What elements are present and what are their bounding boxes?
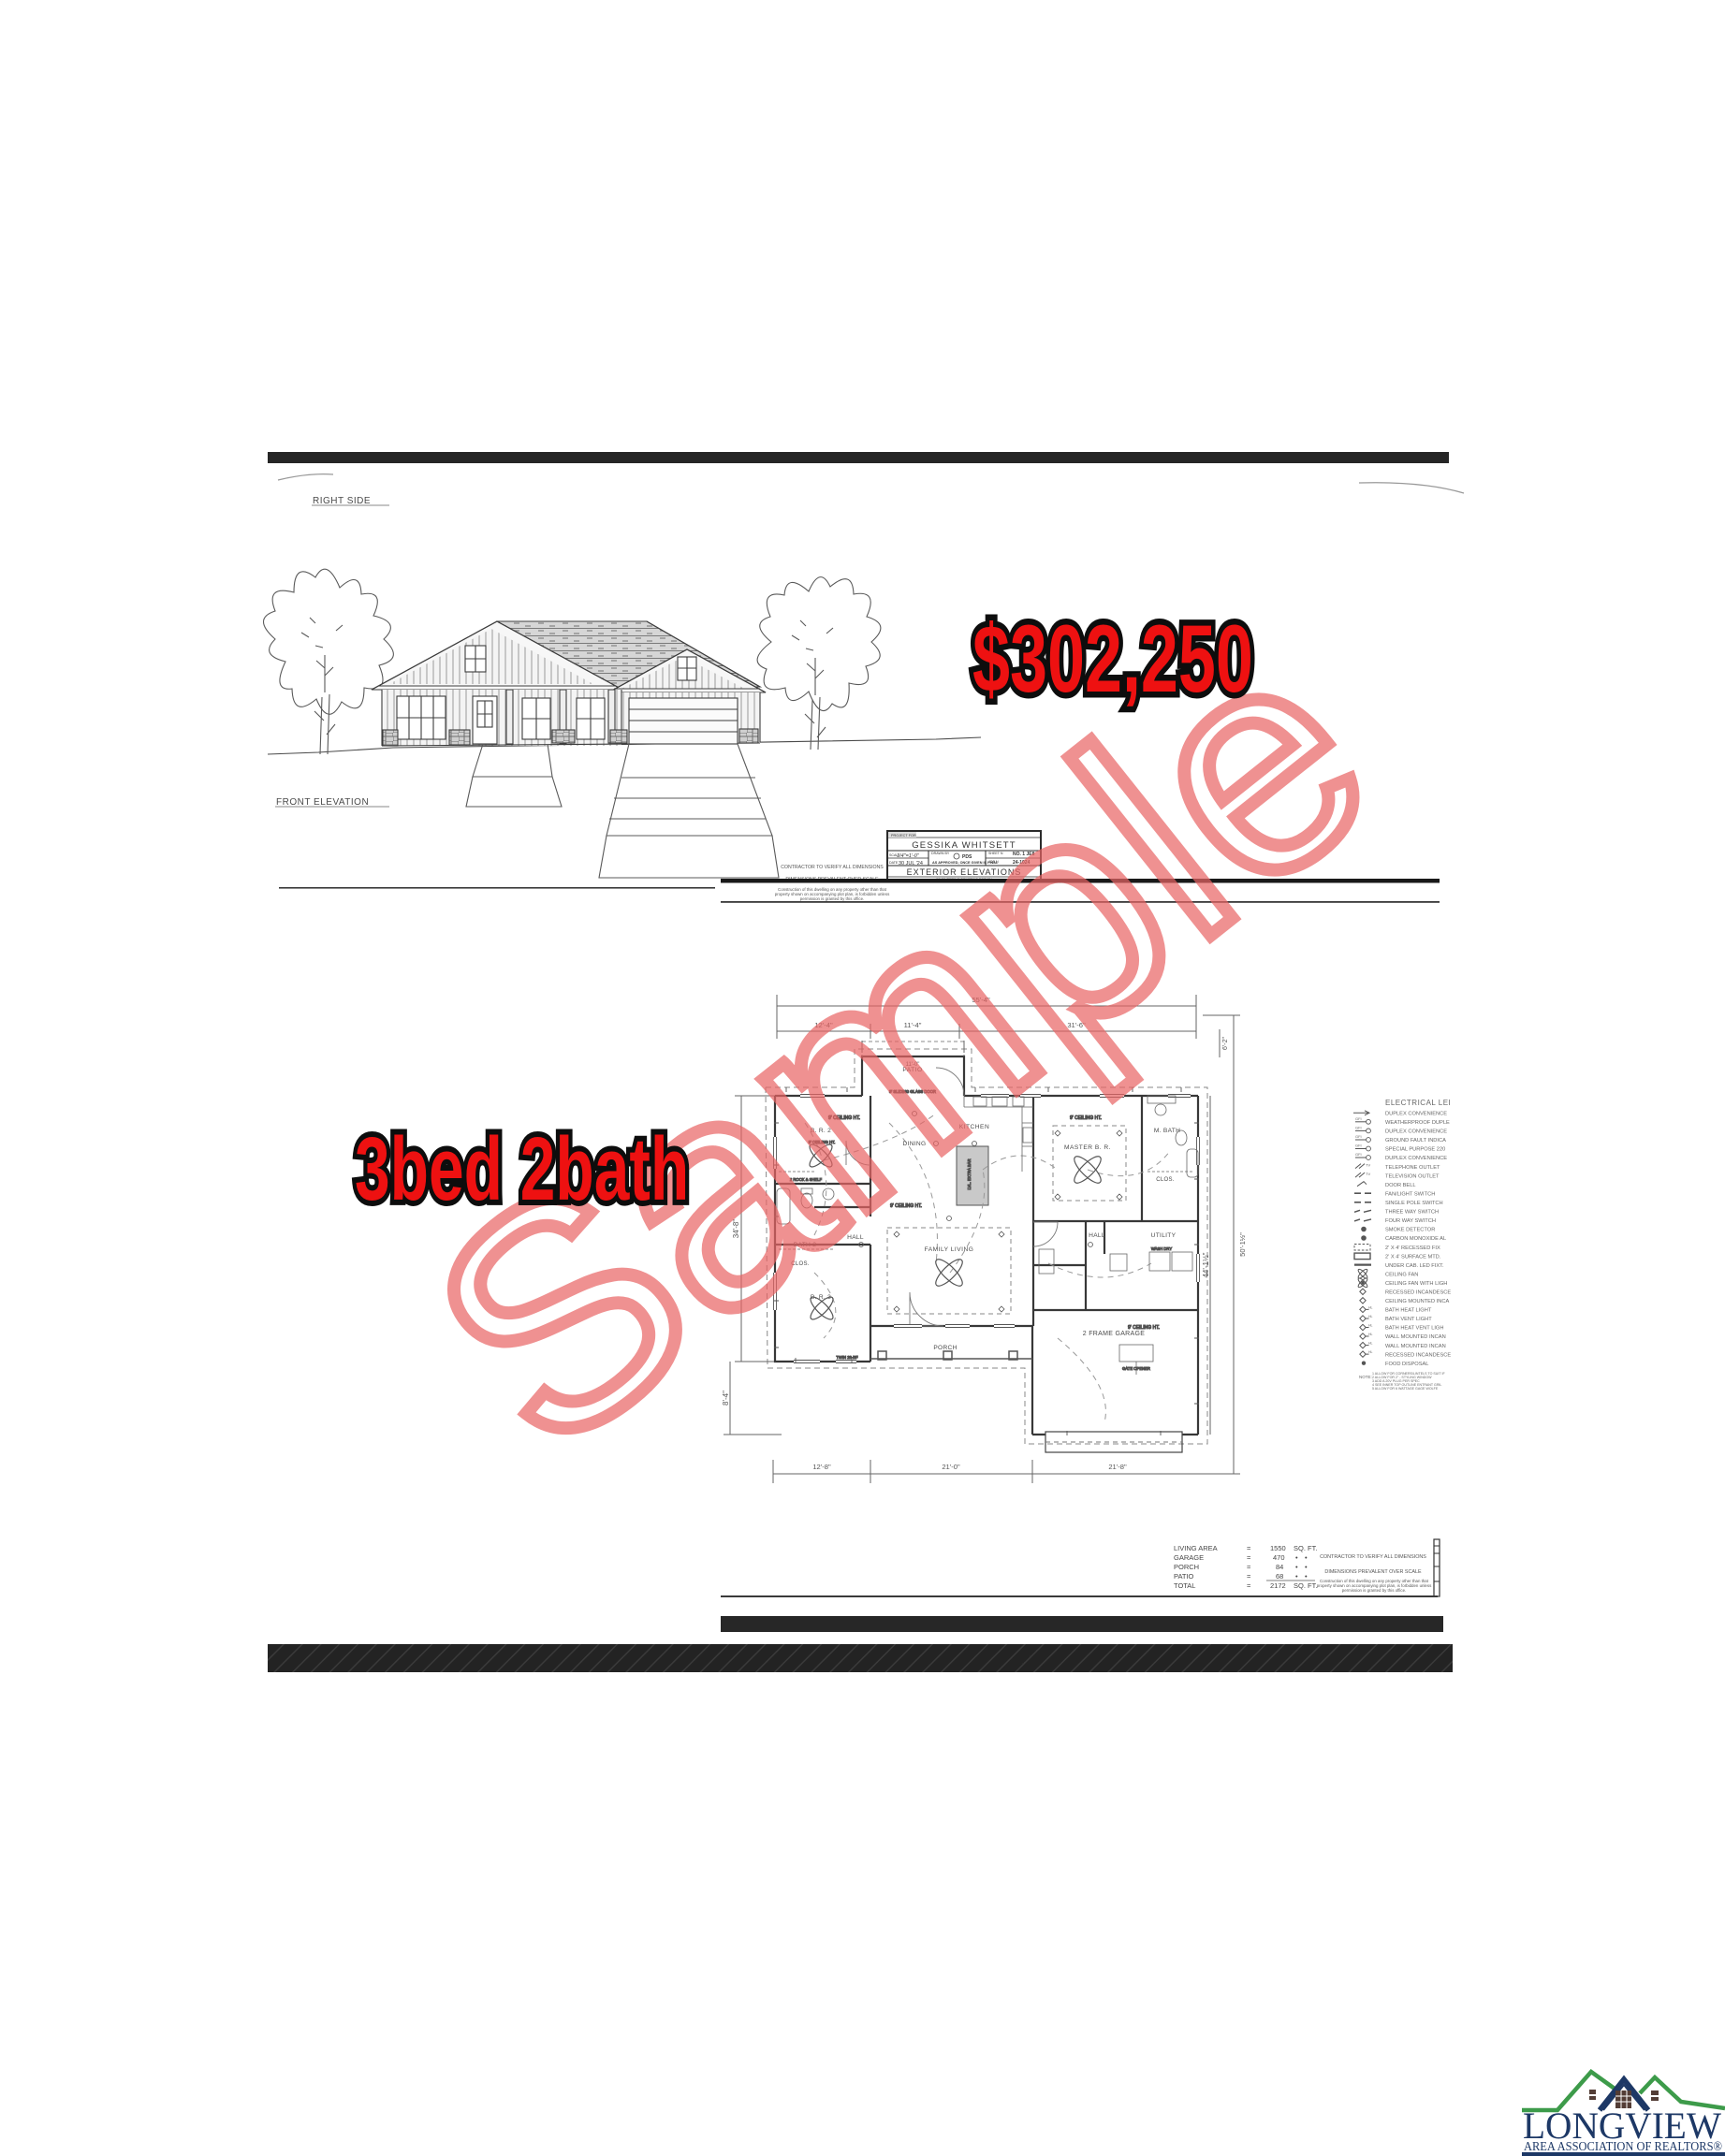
svg-text:=: = bbox=[1247, 1581, 1251, 1590]
svg-text:50'-1½": 50'-1½" bbox=[1238, 1232, 1247, 1257]
svg-text:RECESSED INCANDESCE: RECESSED INCANDESCE bbox=[1385, 1290, 1451, 1296]
svg-text:HL: HL bbox=[1368, 1305, 1373, 1309]
svg-text:TELEVISION OUTLET: TELEVISION OUTLET bbox=[1385, 1173, 1440, 1179]
svg-text:AREA ASSOCIATION OF REALTORS®: AREA ASSOCIATION OF REALTORS® bbox=[1524, 2139, 1722, 2153]
svg-text:FRONT ELEVATION: FRONT ELEVATION bbox=[276, 797, 369, 808]
svg-text:GATE OPENER: GATE OPENER bbox=[1122, 1366, 1150, 1371]
svg-text:21'-8": 21'-8" bbox=[1108, 1463, 1127, 1471]
svg-text:•: • bbox=[1305, 1572, 1308, 1581]
svg-text:•: • bbox=[1295, 1553, 1298, 1562]
svg-text:•: • bbox=[1295, 1572, 1298, 1581]
svg-text:GFI: GFI bbox=[1355, 1116, 1362, 1121]
svg-text:$302,250: $302,250 bbox=[972, 605, 1253, 712]
svg-text:GFI: GFI bbox=[1355, 1144, 1362, 1148]
svg-text:=: = bbox=[1247, 1544, 1251, 1552]
svg-text:ELECTRICAL LEI: ELECTRICAL LEI bbox=[1385, 1099, 1451, 1107]
svg-text:BATH VENT LIGHT: BATH VENT LIGHT bbox=[1385, 1317, 1432, 1322]
svg-text:HL: HL bbox=[1368, 1333, 1373, 1336]
svg-text:RECESSED INCANDESCE: RECESSED INCANDESCE bbox=[1385, 1352, 1451, 1358]
svg-text:DUPLEX CONVENIENCE: DUPLEX CONVENIENCE bbox=[1385, 1129, 1447, 1135]
svg-text:permission is granted by this: permission is granted by this office. bbox=[1342, 1588, 1407, 1593]
svg-text:2 FRAME GARAGE: 2 FRAME GARAGE bbox=[1083, 1331, 1145, 1337]
svg-text:GROUND FAULT INDICA: GROUND FAULT INDICA bbox=[1385, 1138, 1446, 1144]
svg-text:WEATHERPROOF DUPLE: WEATHERPROOF DUPLE bbox=[1385, 1120, 1450, 1126]
svg-text:DIMENSIONS PREVALENT OVER S: DIMENSIONS PREVALENT OVER SCALE bbox=[1324, 1569, 1422, 1575]
svg-text:PATIO: PATIO bbox=[1174, 1572, 1194, 1581]
svg-text:=: = bbox=[1247, 1572, 1251, 1581]
svg-text:HALL: HALL bbox=[1089, 1232, 1105, 1239]
svg-text:=: = bbox=[1247, 1563, 1251, 1571]
svg-text:DUPLEX CONVENIENCE: DUPLEX CONVENIENCE bbox=[1385, 1112, 1447, 1117]
svg-text:GFI: GFI bbox=[1355, 1152, 1362, 1157]
svg-text:BATH HEAT VENT LIGH: BATH HEAT VENT LIGH bbox=[1385, 1326, 1443, 1332]
svg-text:DOOR BELL: DOOR BELL bbox=[1385, 1183, 1416, 1188]
svg-text:=: = bbox=[1247, 1553, 1251, 1562]
svg-text:SQ. FT.: SQ. FT. bbox=[1294, 1544, 1317, 1552]
svg-text:TV: TV bbox=[1366, 1163, 1370, 1168]
svg-text:•: • bbox=[1305, 1563, 1308, 1571]
svg-text:BATH HEAT LIGHT: BATH HEAT LIGHT bbox=[1385, 1308, 1432, 1314]
svg-text:CEILING FAN WITH LIGH: CEILING FAN WITH LIGH bbox=[1385, 1281, 1447, 1287]
svg-text:CONTRACTOR TO VERIFY ALL D: CONTRACTOR TO VERIFY ALL DIMENSIONS bbox=[1320, 1554, 1426, 1560]
svg-text:2' X 4' SURFACE MTD.: 2' X 4' SURFACE MTD. bbox=[1385, 1254, 1441, 1260]
svg-text:TELEPHONE OUTLET: TELEPHONE OUTLET bbox=[1385, 1165, 1440, 1171]
svg-text:WASH DRY: WASH DRY bbox=[1151, 1246, 1173, 1251]
svg-text:M. BATH: M. BATH bbox=[1154, 1128, 1180, 1134]
svg-text:THREE WAY SWITCH: THREE WAY SWITCH bbox=[1385, 1210, 1439, 1216]
svg-text:HL: HL bbox=[1368, 1342, 1373, 1346]
svg-text:12'-8": 12'-8" bbox=[812, 1463, 831, 1471]
svg-text:•: • bbox=[1295, 1563, 1298, 1571]
svg-text:470: 470 bbox=[1273, 1553, 1285, 1562]
svg-text:CLOS.: CLOS. bbox=[1156, 1177, 1175, 1183]
svg-text:FAMILY LIVING: FAMILY LIVING bbox=[925, 1246, 974, 1253]
svg-text:TOTAL: TOTAL bbox=[1174, 1581, 1195, 1590]
svg-text:HL: HL bbox=[1368, 1350, 1373, 1354]
svg-text:PORCH: PORCH bbox=[1174, 1563, 1199, 1571]
svg-text:6'-2": 6'-2" bbox=[1222, 1037, 1229, 1050]
svg-text:CARBON MONOXIDE AL: CARBON MONOXIDE AL bbox=[1385, 1236, 1446, 1242]
svg-text:LIVING AREA: LIVING AREA bbox=[1174, 1544, 1218, 1552]
svg-text:FOOD DISPOSAL: FOOD DISPOSAL bbox=[1385, 1362, 1428, 1367]
svg-text:68: 68 bbox=[1276, 1572, 1283, 1581]
svg-text:84: 84 bbox=[1276, 1563, 1283, 1571]
svg-text:FAN/LIGHT SWITCH: FAN/LIGHT SWITCH bbox=[1385, 1192, 1435, 1198]
svg-text:DUPLEX CONVENIENCE: DUPLEX CONVENIENCE bbox=[1385, 1156, 1447, 1161]
svg-text:UNDER CAB. LED FIXT.: UNDER CAB. LED FIXT. bbox=[1385, 1263, 1444, 1269]
svg-text:21'-0": 21'-0" bbox=[942, 1463, 960, 1471]
svg-text:WALL MOUNTED INCAN: WALL MOUNTED INCAN bbox=[1385, 1334, 1446, 1340]
svg-text:5 ALLOW FOR 6 WATTAGE GAGE WO: 5 ALLOW FOR 6 WATTAGE GAGE WOLFE bbox=[1372, 1387, 1439, 1391]
svg-text:UTILITY: UTILITY bbox=[1151, 1232, 1177, 1239]
svg-text:2172: 2172 bbox=[1270, 1581, 1286, 1590]
svg-text:PORCH: PORCH bbox=[933, 1345, 957, 1351]
svg-text:HL: HL bbox=[1368, 1315, 1373, 1318]
svg-text:TV: TV bbox=[1366, 1172, 1370, 1176]
svg-text:NOTE:: NOTE: bbox=[1359, 1375, 1372, 1379]
svg-text:44'-1½": 44'-1½" bbox=[1202, 1252, 1210, 1277]
svg-text:SMOKE DETECTOR: SMOKE DETECTOR bbox=[1385, 1228, 1435, 1233]
svg-text:CEILING FAN: CEILING FAN bbox=[1385, 1272, 1418, 1277]
svg-text:GARAGE: GARAGE bbox=[1174, 1553, 1204, 1562]
svg-text:SINGLE POLE SWITCH: SINGLE POLE SWITCH bbox=[1385, 1201, 1443, 1206]
svg-text:RIGHT SIDE: RIGHT SIDE bbox=[313, 496, 371, 506]
svg-text:TWIN 28-BF: TWIN 28-BF bbox=[836, 1355, 858, 1360]
svg-text:3bed 2bath: 3bed 2bath bbox=[355, 1118, 689, 1218]
svg-text:MASTER B. R.: MASTER B. R. bbox=[1064, 1144, 1111, 1151]
svg-text:FOUR WAY SWITCH: FOUR WAY SWITCH bbox=[1385, 1218, 1436, 1224]
svg-text:GFI: GFI bbox=[1355, 1125, 1362, 1129]
svg-text:2' X 4' RECESSED FIX: 2' X 4' RECESSED FIX bbox=[1385, 1246, 1440, 1251]
svg-text:HL: HL bbox=[1368, 1324, 1373, 1328]
svg-text:1550: 1550 bbox=[1270, 1544, 1286, 1552]
svg-text:GFI: GFI bbox=[1355, 1134, 1362, 1139]
svg-text:SQ. FT.: SQ. FT. bbox=[1294, 1581, 1317, 1590]
svg-text:•: • bbox=[1305, 1553, 1308, 1562]
svg-text:SPECIAL PURPOSE 220: SPECIAL PURPOSE 220 bbox=[1385, 1147, 1445, 1153]
svg-text:WALL MOUNTED INCAN: WALL MOUNTED INCAN bbox=[1385, 1344, 1446, 1349]
svg-text:CEILING MOUNTED INCA: CEILING MOUNTED INCA bbox=[1385, 1299, 1449, 1304]
